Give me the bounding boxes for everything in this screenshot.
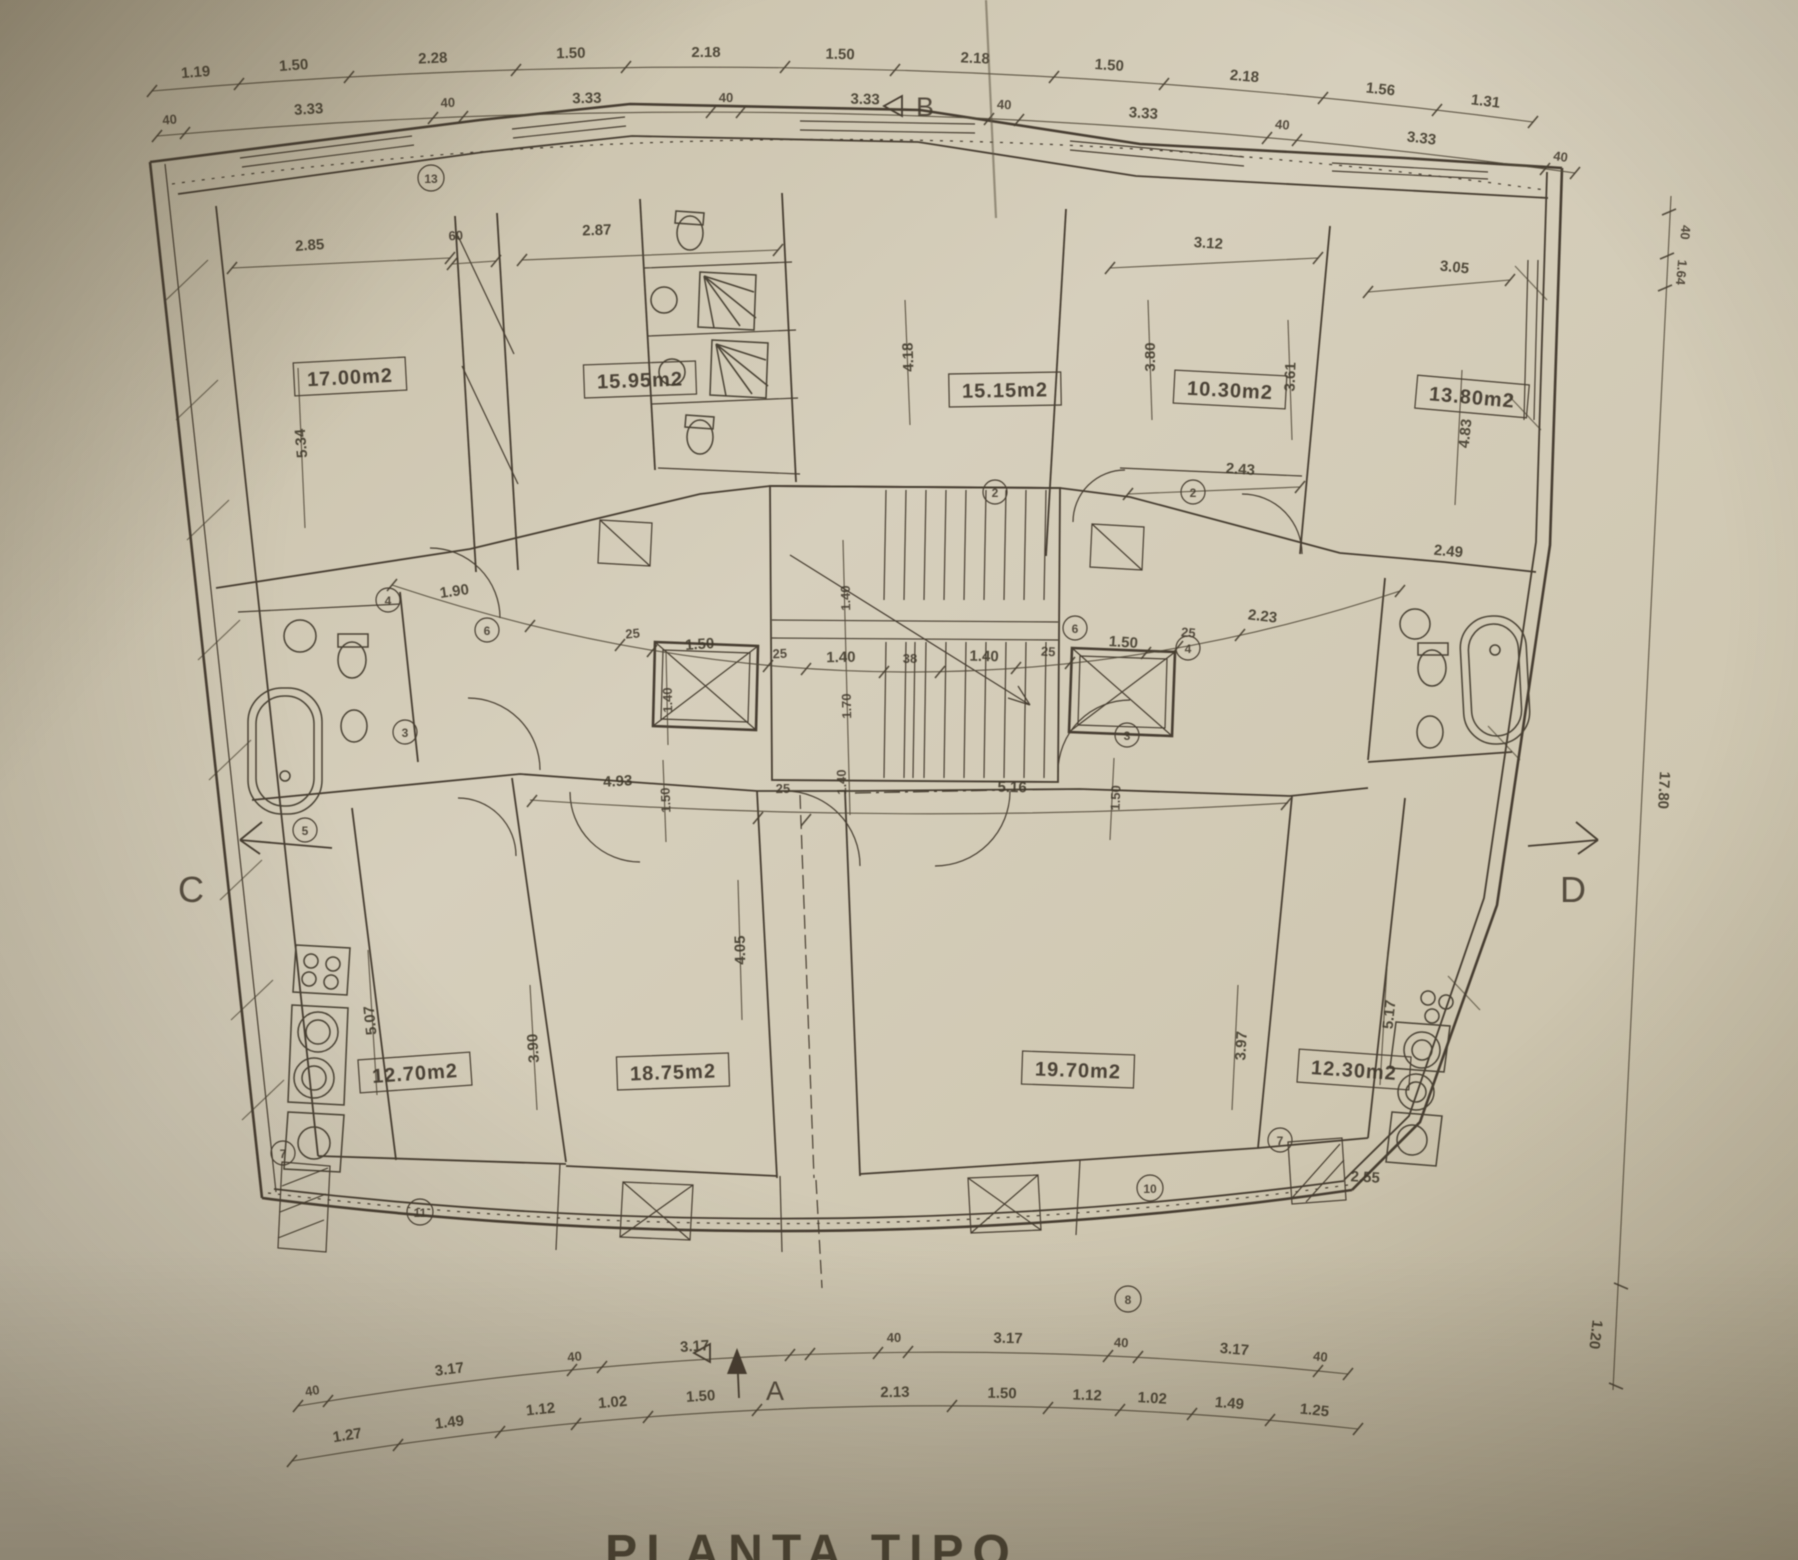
bottom-shadow (0, 0, 1798, 1560)
floorplan-drawing: 1.19 1.50 2.28 1.50 2.18 1.50 2.18 1.50 … (0, 0, 1798, 1560)
scanned-floor-plan-page: 1.19 1.50 2.28 1.50 2.18 1.50 2.18 1.50 … (0, 0, 1798, 1560)
